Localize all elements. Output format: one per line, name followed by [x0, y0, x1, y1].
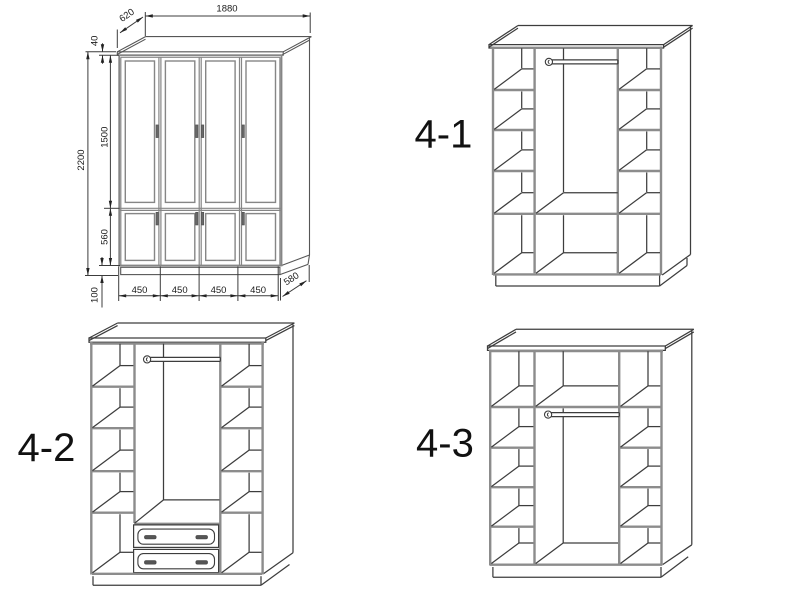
svg-text:450: 450 — [132, 285, 148, 296]
svg-text:4-1: 4-1 — [415, 113, 473, 157]
svg-text:4-3: 4-3 — [416, 421, 474, 465]
svg-text:1500: 1500 — [99, 127, 110, 148]
svg-text:40: 40 — [90, 36, 101, 47]
svg-text:1880: 1880 — [216, 3, 237, 14]
svg-text:4-2: 4-2 — [18, 426, 76, 470]
svg-text:450: 450 — [250, 285, 266, 296]
svg-text:450: 450 — [211, 285, 227, 296]
svg-text:560: 560 — [99, 229, 110, 245]
svg-text:2200: 2200 — [76, 149, 87, 170]
svg-text:450: 450 — [172, 285, 188, 296]
svg-text:100: 100 — [90, 287, 101, 303]
